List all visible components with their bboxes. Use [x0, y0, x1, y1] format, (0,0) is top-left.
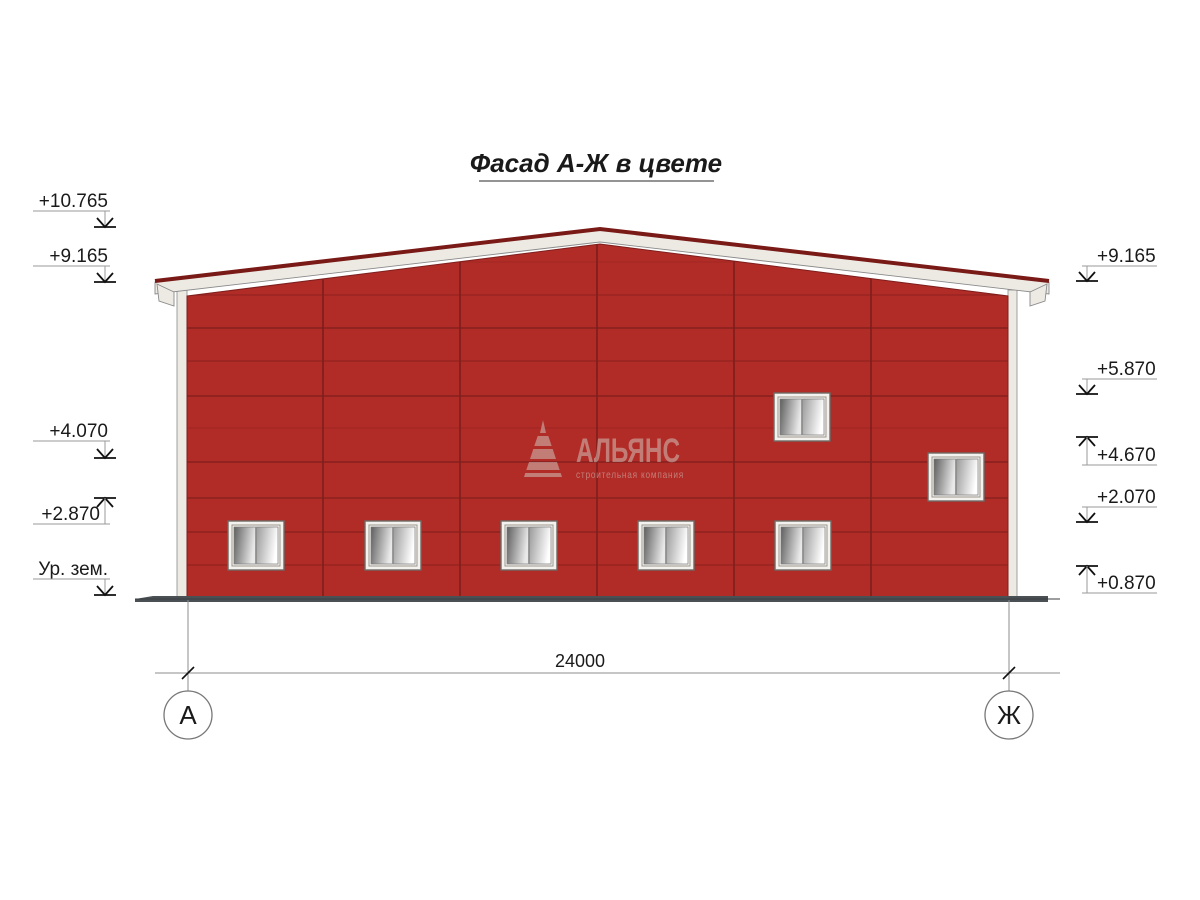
- window-pane: [234, 527, 256, 564]
- elevation-value: +0.870: [1097, 573, 1156, 594]
- elevation-value: +10.765: [39, 191, 108, 212]
- elevation-mark: +0.870: [1076, 566, 1157, 594]
- elevation-mark: +10.765: [33, 191, 116, 227]
- watermark-tagline: строительная компания: [576, 469, 684, 481]
- window-pane: [780, 399, 802, 435]
- building-facade: АЛЬЯНС строительная компания: [135, 229, 1060, 602]
- window: [775, 521, 831, 570]
- window: [638, 521, 694, 570]
- elevation-value: +9.165: [49, 246, 108, 267]
- elevation-value: +4.070: [49, 421, 108, 442]
- elevation-mark: +9.165: [33, 246, 116, 282]
- elevation-marks-right: +9.165 +5.870 +4.670 +2.070: [1076, 246, 1157, 594]
- window-pane: [507, 527, 529, 564]
- facade-drawing-canvas: Фасад А-Ж в цвете: [0, 0, 1200, 900]
- window-pane: [644, 527, 666, 564]
- axis-label-zh: Ж: [997, 700, 1021, 730]
- axis-label-a: А: [179, 700, 197, 730]
- window-pane: [957, 459, 979, 495]
- dimension-and-axes: 24000 А Ж: [155, 600, 1060, 739]
- window-pane: [667, 527, 689, 564]
- drawing-title: Фасад А-Ж в цвете: [470, 148, 722, 181]
- pyramid-slat: [530, 449, 556, 459]
- elevation-mark: +2.870: [33, 498, 116, 525]
- elevation-value: Ур. зем.: [38, 559, 108, 580]
- watermark-company-name: АЛЬЯНС: [576, 432, 680, 470]
- elevation-value: +2.870: [41, 504, 100, 525]
- window: [365, 521, 421, 570]
- window-pane: [803, 399, 825, 435]
- elevation-mark: +4.070: [33, 421, 116, 458]
- elevation-mark: Ур. зем.: [33, 559, 116, 595]
- facade-drawing-page: Фасад А-Ж в цвете: [0, 0, 1200, 900]
- overall-dimension-value: 24000: [555, 651, 605, 671]
- window-pane: [804, 527, 826, 564]
- elevation-value: +4.670: [1097, 445, 1156, 466]
- elevation-mark: +9.165: [1076, 246, 1157, 281]
- elevation-mark: +2.070: [1076, 487, 1157, 522]
- window-pane: [394, 527, 416, 564]
- elevation-marks-left: +10.765 +9.165 +4.070 +2.870: [33, 191, 116, 595]
- elevation-mark: +5.870: [1076, 359, 1157, 394]
- window-pane: [781, 527, 803, 564]
- elevation-value: +9.165: [1097, 246, 1156, 267]
- window: [774, 393, 830, 441]
- window-pane: [530, 527, 552, 564]
- window: [928, 453, 984, 501]
- elevation-value: +5.870: [1097, 359, 1156, 380]
- elevation-value: +2.070: [1097, 487, 1156, 508]
- elevation-mark: +4.670: [1076, 437, 1157, 466]
- pyramid-slat: [524, 473, 562, 477]
- window-pane: [371, 527, 393, 564]
- window: [501, 521, 557, 570]
- corner-trim-left: [177, 290, 187, 597]
- page-title: Фасад А-Ж в цвете: [470, 148, 722, 178]
- ground-line: [135, 596, 1060, 602]
- pyramid-slat: [526, 462, 559, 470]
- window-pane: [934, 459, 956, 495]
- corner-trim-right: [1008, 290, 1017, 597]
- window: [228, 521, 284, 570]
- window-pane: [257, 527, 279, 564]
